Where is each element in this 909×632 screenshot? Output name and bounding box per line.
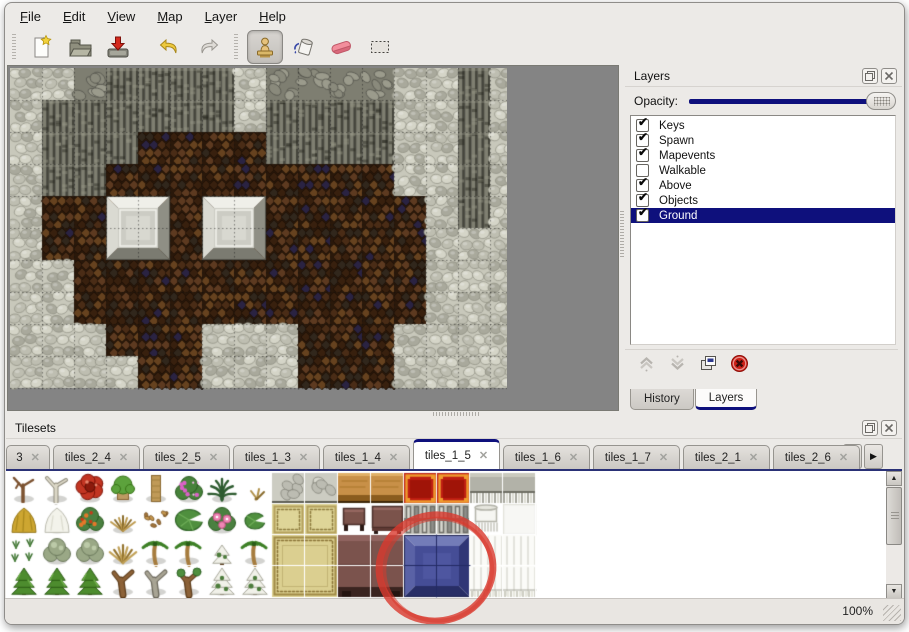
tileset-tab-tiles_1_6[interactable]: tiles_1_6✕ — [503, 445, 590, 469]
eraser-tool-button[interactable] — [325, 31, 359, 63]
scroll-up-button[interactable]: ▲ — [886, 471, 902, 486]
fill-tool-button[interactable] — [287, 31, 321, 63]
tab-label: tiles_2_5 — [155, 452, 201, 464]
close-tab-icon[interactable]: ✕ — [749, 451, 758, 464]
close-tab-icon[interactable]: ✕ — [389, 451, 398, 464]
open-folder-icon — [67, 34, 94, 60]
toolbar — [5, 29, 904, 64]
close-panel-button[interactable] — [881, 68, 897, 84]
tileset-scrollbar[interactable]: ▲ ▼ — [886, 471, 902, 599]
scroll-down-button[interactable]: ▼ — [886, 584, 902, 599]
tileset-tab-tiles_1_4[interactable]: tiles_1_4✕ — [323, 445, 410, 469]
redo-button[interactable] — [191, 31, 225, 63]
toolbar-drag-handle — [12, 34, 16, 60]
paint-bucket-icon — [291, 34, 318, 60]
layer-list: ✔Keys✔Spawn✔MapeventsWalkable✔Above✔Obje… — [630, 115, 896, 345]
layer-actions — [625, 349, 898, 382]
scroll-tabs-right-button[interactable]: ▶ — [864, 444, 883, 469]
tileset-tab-tiles_2_4[interactable]: tiles_2_4✕ — [53, 445, 140, 469]
checkmark-icon: ✔ — [638, 190, 648, 204]
toolbar-drag-handle — [234, 34, 238, 60]
tab-label: tiles_1_7 — [605, 452, 651, 464]
tileset-tab-tiles_2_1[interactable]: tiles_2_1✕ — [683, 445, 770, 469]
stamp-icon — [252, 34, 278, 60]
float-panel-icon — [865, 71, 875, 81]
open-button[interactable] — [63, 31, 97, 63]
opacity-slider-handle[interactable] — [866, 92, 896, 110]
close-panel-button[interactable] — [881, 420, 897, 436]
layer-visibility-checkbox[interactable]: ✔ — [636, 209, 649, 222]
layer-row-spawn[interactable]: ✔Spawn — [631, 133, 895, 148]
dock-tab-layers[interactable]: Layers — [695, 389, 758, 410]
close-tab-icon[interactable]: ✕ — [659, 451, 668, 464]
checkmark-icon: ✔ — [638, 205, 648, 219]
app-window: FileEditViewMapLayerHelp Layers Opacity:… — [4, 2, 905, 625]
float-panel-button[interactable] — [862, 420, 878, 436]
new-file-icon — [29, 34, 55, 60]
layer-label: Spawn — [659, 135, 694, 147]
save-button[interactable] — [101, 31, 135, 63]
layer-row-ground[interactable]: ✔Ground — [631, 208, 895, 223]
tab-label: 3 — [16, 452, 22, 464]
checkmark-icon: ✔ — [638, 145, 648, 159]
layers-panel: Layers Opacity: ✔Keys✔Spawn✔MapeventsWal… — [625, 65, 902, 411]
opacity-slider-track[interactable] — [689, 99, 895, 104]
tab-label: tiles_2_1 — [695, 452, 741, 464]
move-layer-down-icon — [668, 354, 687, 378]
move-layer-down-button[interactable] — [668, 354, 687, 378]
menu-file[interactable]: File — [9, 5, 52, 28]
layer-row-keys[interactable]: ✔Keys — [631, 118, 895, 133]
close-panel-icon — [884, 71, 894, 81]
tileset-tab-tiles_1_5[interactable]: tiles_1_5✕ — [413, 439, 500, 469]
layer-row-walkable[interactable]: Walkable — [631, 163, 895, 178]
duplicate-layer-icon — [699, 354, 718, 378]
scroll-tabs-right-icon: ▶ — [870, 451, 877, 462]
float-panel-button[interactable] — [862, 68, 878, 84]
tilesets-panel-titlebar: Tilesets — [6, 417, 902, 439]
close-tab-icon[interactable]: ✕ — [299, 451, 308, 464]
layer-row-above[interactable]: ✔Above — [631, 178, 895, 193]
checkmark-icon: ✔ — [638, 115, 648, 129]
close-tab-icon[interactable]: ✕ — [569, 451, 578, 464]
tileset-tab-3[interactable]: 3✕ — [6, 445, 50, 469]
menu-map[interactable]: Map — [146, 5, 193, 28]
tileset-content: ▲ ▼ — [6, 469, 902, 599]
menu-help[interactable]: Help — [248, 5, 297, 28]
undo-arrow-icon — [157, 34, 183, 60]
tileset-tab-tiles_2_5[interactable]: tiles_2_5✕ — [143, 445, 230, 469]
save-icon — [105, 34, 131, 60]
statusbar: 100% — [5, 598, 904, 624]
close-tab-icon[interactable]: ✕ — [209, 451, 218, 464]
menu-edit[interactable]: Edit — [52, 5, 96, 28]
tileset-tab-tiles_2_6[interactable]: tiles_2_6✕ — [773, 445, 860, 469]
layer-row-objects[interactable]: ✔Objects — [631, 193, 895, 208]
delete-layer-button[interactable] — [730, 354, 749, 378]
tileset-tab-bar: ◀ ▶ 3✕tiles_2_4✕tiles_2_5✕tiles_1_3✕tile… — [6, 437, 902, 469]
layer-row-mapevents[interactable]: ✔Mapevents — [631, 148, 895, 163]
layer-label: Ground — [659, 210, 697, 222]
layer-label: Keys — [659, 120, 685, 132]
menubar: FileEditViewMapLayerHelp — [5, 3, 904, 29]
close-tab-icon[interactable]: ✕ — [119, 451, 128, 464]
tileset-canvas[interactable] — [7, 472, 537, 598]
tileset-tab-tiles_1_7[interactable]: tiles_1_7✕ — [593, 445, 680, 469]
move-layer-up-button[interactable] — [637, 354, 656, 378]
scroll-down-icon: ▼ — [891, 588, 898, 595]
delete-layer-icon — [730, 354, 749, 378]
close-panel-icon — [884, 423, 894, 433]
splitter-grip — [433, 412, 481, 416]
new-file-button[interactable] — [25, 31, 59, 63]
float-panel-icon — [865, 423, 875, 433]
layer-label: Objects — [659, 195, 698, 207]
checkmark-icon: ✔ — [638, 175, 648, 189]
tileset-tab-tiles_1_3[interactable]: tiles_1_3✕ — [233, 445, 320, 469]
close-tab-icon[interactable]: ✕ — [479, 449, 488, 462]
layer-label: Mapevents — [659, 150, 715, 162]
layer-label: Above — [659, 180, 692, 192]
stamp-tool-button[interactable] — [247, 30, 283, 64]
tilesets-panel: Tilesets ◀ ▶ 3✕tiles_2_4✕tiles_2_5✕tiles… — [6, 417, 902, 599]
scrollbar-thumb[interactable] — [886, 487, 902, 545]
dock-tab-history[interactable]: History — [630, 389, 694, 410]
splitter-grip — [620, 211, 624, 259]
tab-label: tiles_2_6 — [785, 452, 831, 464]
dock-tab-bar: HistoryLayers — [630, 389, 758, 411]
zoom-level: 100% — [842, 604, 873, 618]
tab-label: tiles_1_6 — [515, 452, 561, 464]
select-tool-button[interactable] — [363, 31, 397, 63]
undo-button[interactable] — [153, 31, 187, 63]
layer-visibility-checkbox[interactable]: ✔ — [636, 149, 649, 162]
tab-label: tiles_2_4 — [65, 452, 111, 464]
layer-label: Walkable — [659, 165, 706, 177]
tilesets-panel-title: Tilesets — [15, 421, 56, 435]
tab-label: tiles_1_5 — [425, 450, 471, 462]
menu-layer[interactable]: Layer — [194, 5, 249, 28]
resize-grip-icon[interactable] — [883, 605, 901, 621]
eraser-icon — [328, 34, 356, 60]
layers-panel-titlebar: Layers — [625, 65, 902, 87]
menu-view[interactable]: View — [96, 5, 146, 28]
duplicate-layer-button[interactable] — [699, 354, 718, 378]
opacity-label: Opacity: — [634, 94, 678, 108]
checkmark-icon: ✔ — [638, 130, 648, 144]
map-viewport — [7, 65, 619, 411]
map-canvas[interactable] — [10, 68, 507, 390]
selection-rect-icon — [367, 34, 393, 60]
scroll-up-icon: ▲ — [891, 475, 898, 482]
tab-label: tiles_1_3 — [245, 452, 291, 464]
move-layer-up-icon — [637, 354, 656, 378]
close-tab-icon[interactable]: ✕ — [839, 451, 848, 464]
redo-arrow-icon — [195, 34, 221, 60]
close-tab-icon[interactable]: ✕ — [31, 451, 40, 464]
tab-label: tiles_1_4 — [335, 452, 381, 464]
layers-panel-title: Layers — [634, 69, 670, 83]
